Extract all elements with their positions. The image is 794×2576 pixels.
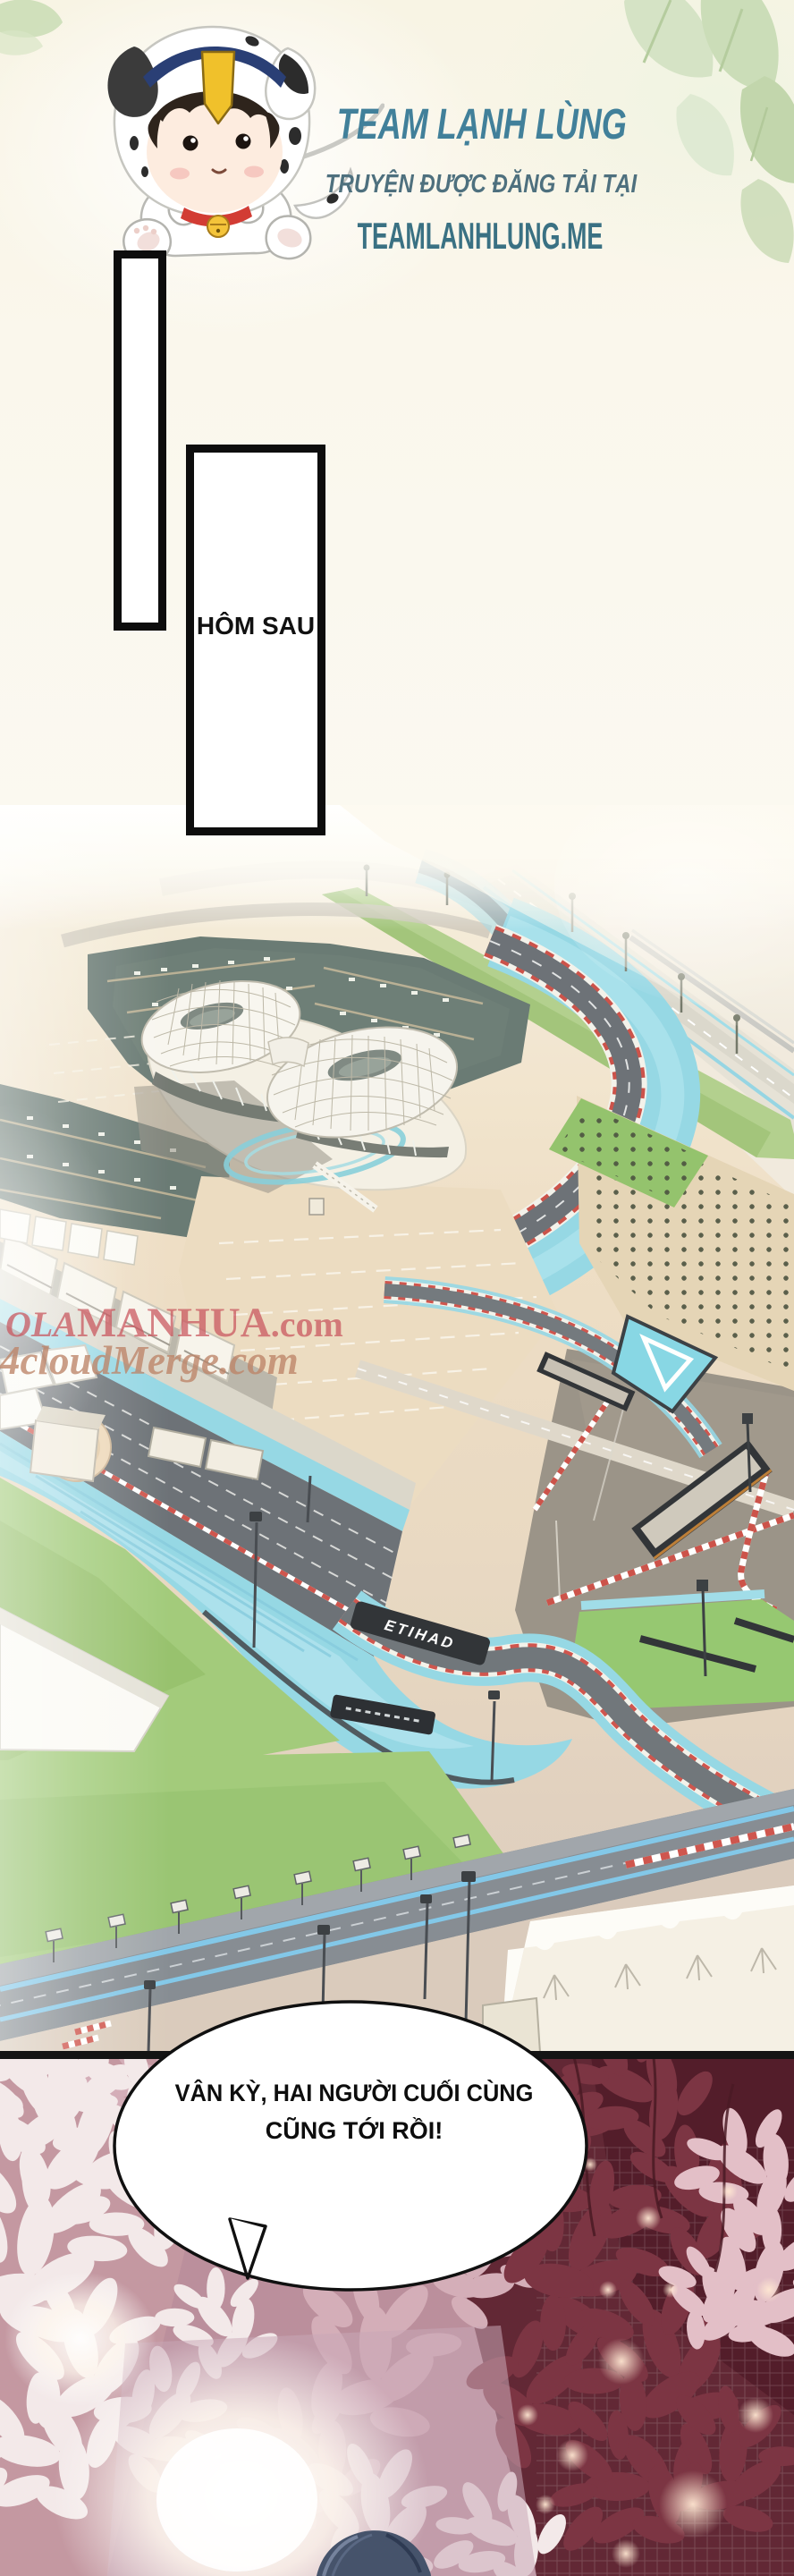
svg-text:VÂN KỲ, HAI NGƯỜI CUỐI CÙNG: VÂN KỲ, HAI NGƯỜI CUỐI CÙNG bbox=[175, 2079, 534, 2106]
svg-text:4cloudMerge.com: 4cloudMerge.com bbox=[0, 1338, 299, 1383]
svg-text:CŨNG TỚI RỒI!: CŨNG TỚI RỒI! bbox=[266, 2116, 443, 2144]
